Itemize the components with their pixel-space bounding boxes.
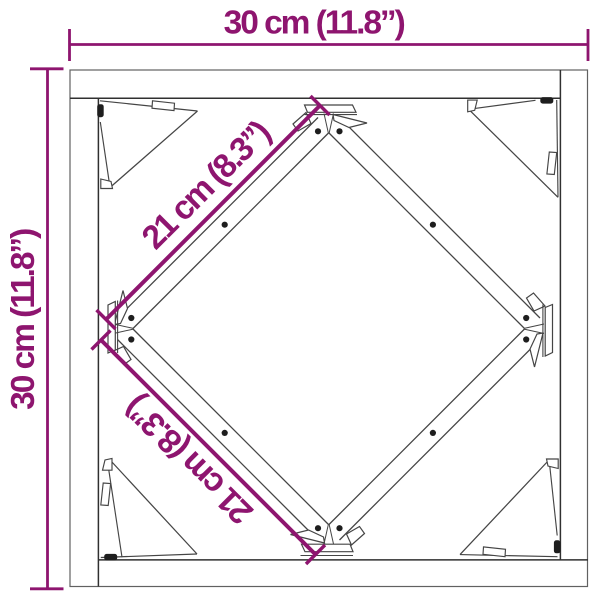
svg-text:30 cm (11.8”): 30 cm (11.8”) <box>224 5 405 42</box>
svg-text:30 cm (11.8”): 30 cm (11.8”) <box>5 229 42 410</box>
